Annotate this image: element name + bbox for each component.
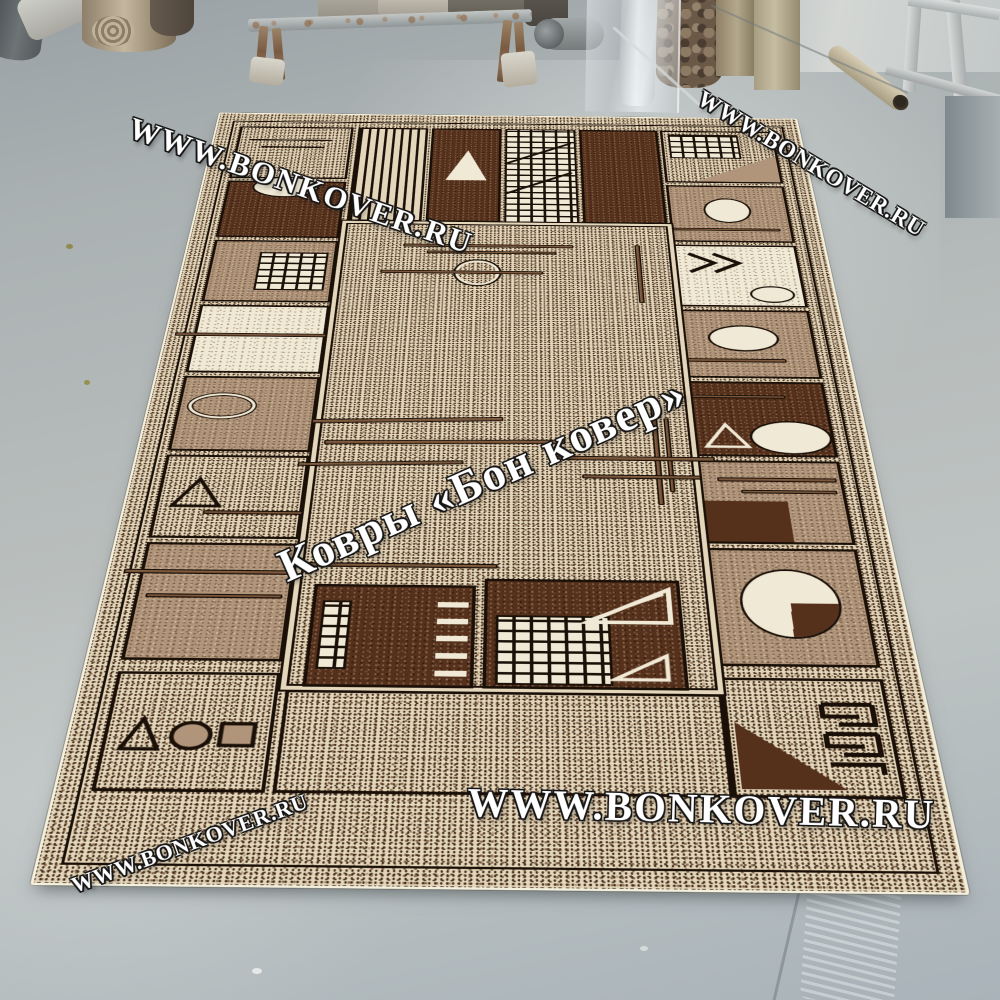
pattern-bar (634, 245, 644, 303)
rug-panel (185, 305, 330, 374)
trestle-foot (500, 50, 537, 87)
pattern-bar (741, 490, 838, 495)
triangle-slash-motif (579, 584, 678, 628)
floor-stain (84, 380, 90, 385)
triangle-motif (438, 145, 493, 185)
triangle-motif (693, 155, 781, 182)
rug-panel (666, 185, 795, 243)
trestle-foot (249, 56, 286, 86)
rug-panel (679, 310, 822, 379)
pattern-bar (202, 510, 317, 515)
rug-panel (696, 460, 856, 545)
rug-panel (91, 671, 280, 793)
ellipse-outline-motif (186, 393, 258, 419)
pattern-line (250, 139, 332, 141)
grid-panel (504, 129, 579, 223)
meander-motif (812, 697, 892, 777)
pattern-line (261, 146, 324, 148)
pattern-bar (672, 394, 785, 398)
slash-line (505, 172, 572, 194)
comb-motif (302, 584, 476, 689)
floor-seam (772, 881, 803, 1000)
pattern-bar (582, 474, 701, 479)
grid-motif (315, 600, 352, 669)
grid-motif (495, 615, 614, 686)
photo-canvas: WWW.BONKOVER.RU WWW.BONKOVER.RU Ковры «Б… (0, 0, 1000, 1000)
cylinder-end (534, 19, 564, 49)
floor-paint-chip (640, 946, 648, 951)
rug-panel (148, 455, 310, 540)
rug-panel (720, 677, 907, 799)
pattern-bar (663, 418, 675, 492)
chevron-motif (682, 251, 754, 277)
rug-panel (201, 240, 338, 303)
pattern-bar (717, 477, 837, 482)
dark-block-motif (704, 501, 794, 542)
circle-outline-motif (452, 259, 501, 286)
roll-spiral-end (92, 16, 134, 46)
triangle-outline-motif (166, 475, 229, 510)
triangle-outline-motif (699, 421, 754, 450)
comb-teeth (434, 596, 469, 677)
rug-panel (672, 245, 808, 308)
triangle-motif (734, 722, 848, 790)
floor-scuff (800, 879, 902, 1000)
triangle-circle-square-motif (111, 710, 267, 755)
floor-stain (66, 244, 73, 249)
carpet-roll (150, 0, 194, 36)
carpet-roll (754, 0, 800, 90)
ellipse-motif (751, 287, 794, 302)
ellipse-motif (709, 326, 779, 350)
rug-panel (687, 381, 838, 458)
rug-panel (579, 130, 668, 224)
pattern-bar (145, 593, 283, 599)
pattern-bar (175, 332, 339, 337)
triangle-slash-motif (608, 652, 674, 684)
grid-motif (253, 252, 329, 290)
pie-circle-motif (739, 571, 845, 638)
rug-panel (121, 542, 298, 661)
slash-line (506, 143, 572, 164)
plastic-film-sheet (585, 0, 681, 113)
staircase-grid-motif (482, 579, 689, 691)
pattern-bar (380, 270, 543, 275)
floor-paint-chip (252, 968, 262, 974)
rug-panel (425, 128, 501, 222)
pattern-bar (661, 358, 787, 363)
circle-motif (704, 199, 751, 222)
pattern-bar (123, 569, 293, 575)
rug-panel (168, 376, 321, 452)
grid-motif (668, 135, 742, 159)
metal-rack-panel (945, 96, 1000, 218)
pattern-bar (653, 228, 781, 232)
rug-panel (706, 548, 881, 668)
pattern-bar (311, 417, 503, 423)
ellipse-motif (750, 422, 833, 454)
pattern-bar (297, 460, 463, 466)
